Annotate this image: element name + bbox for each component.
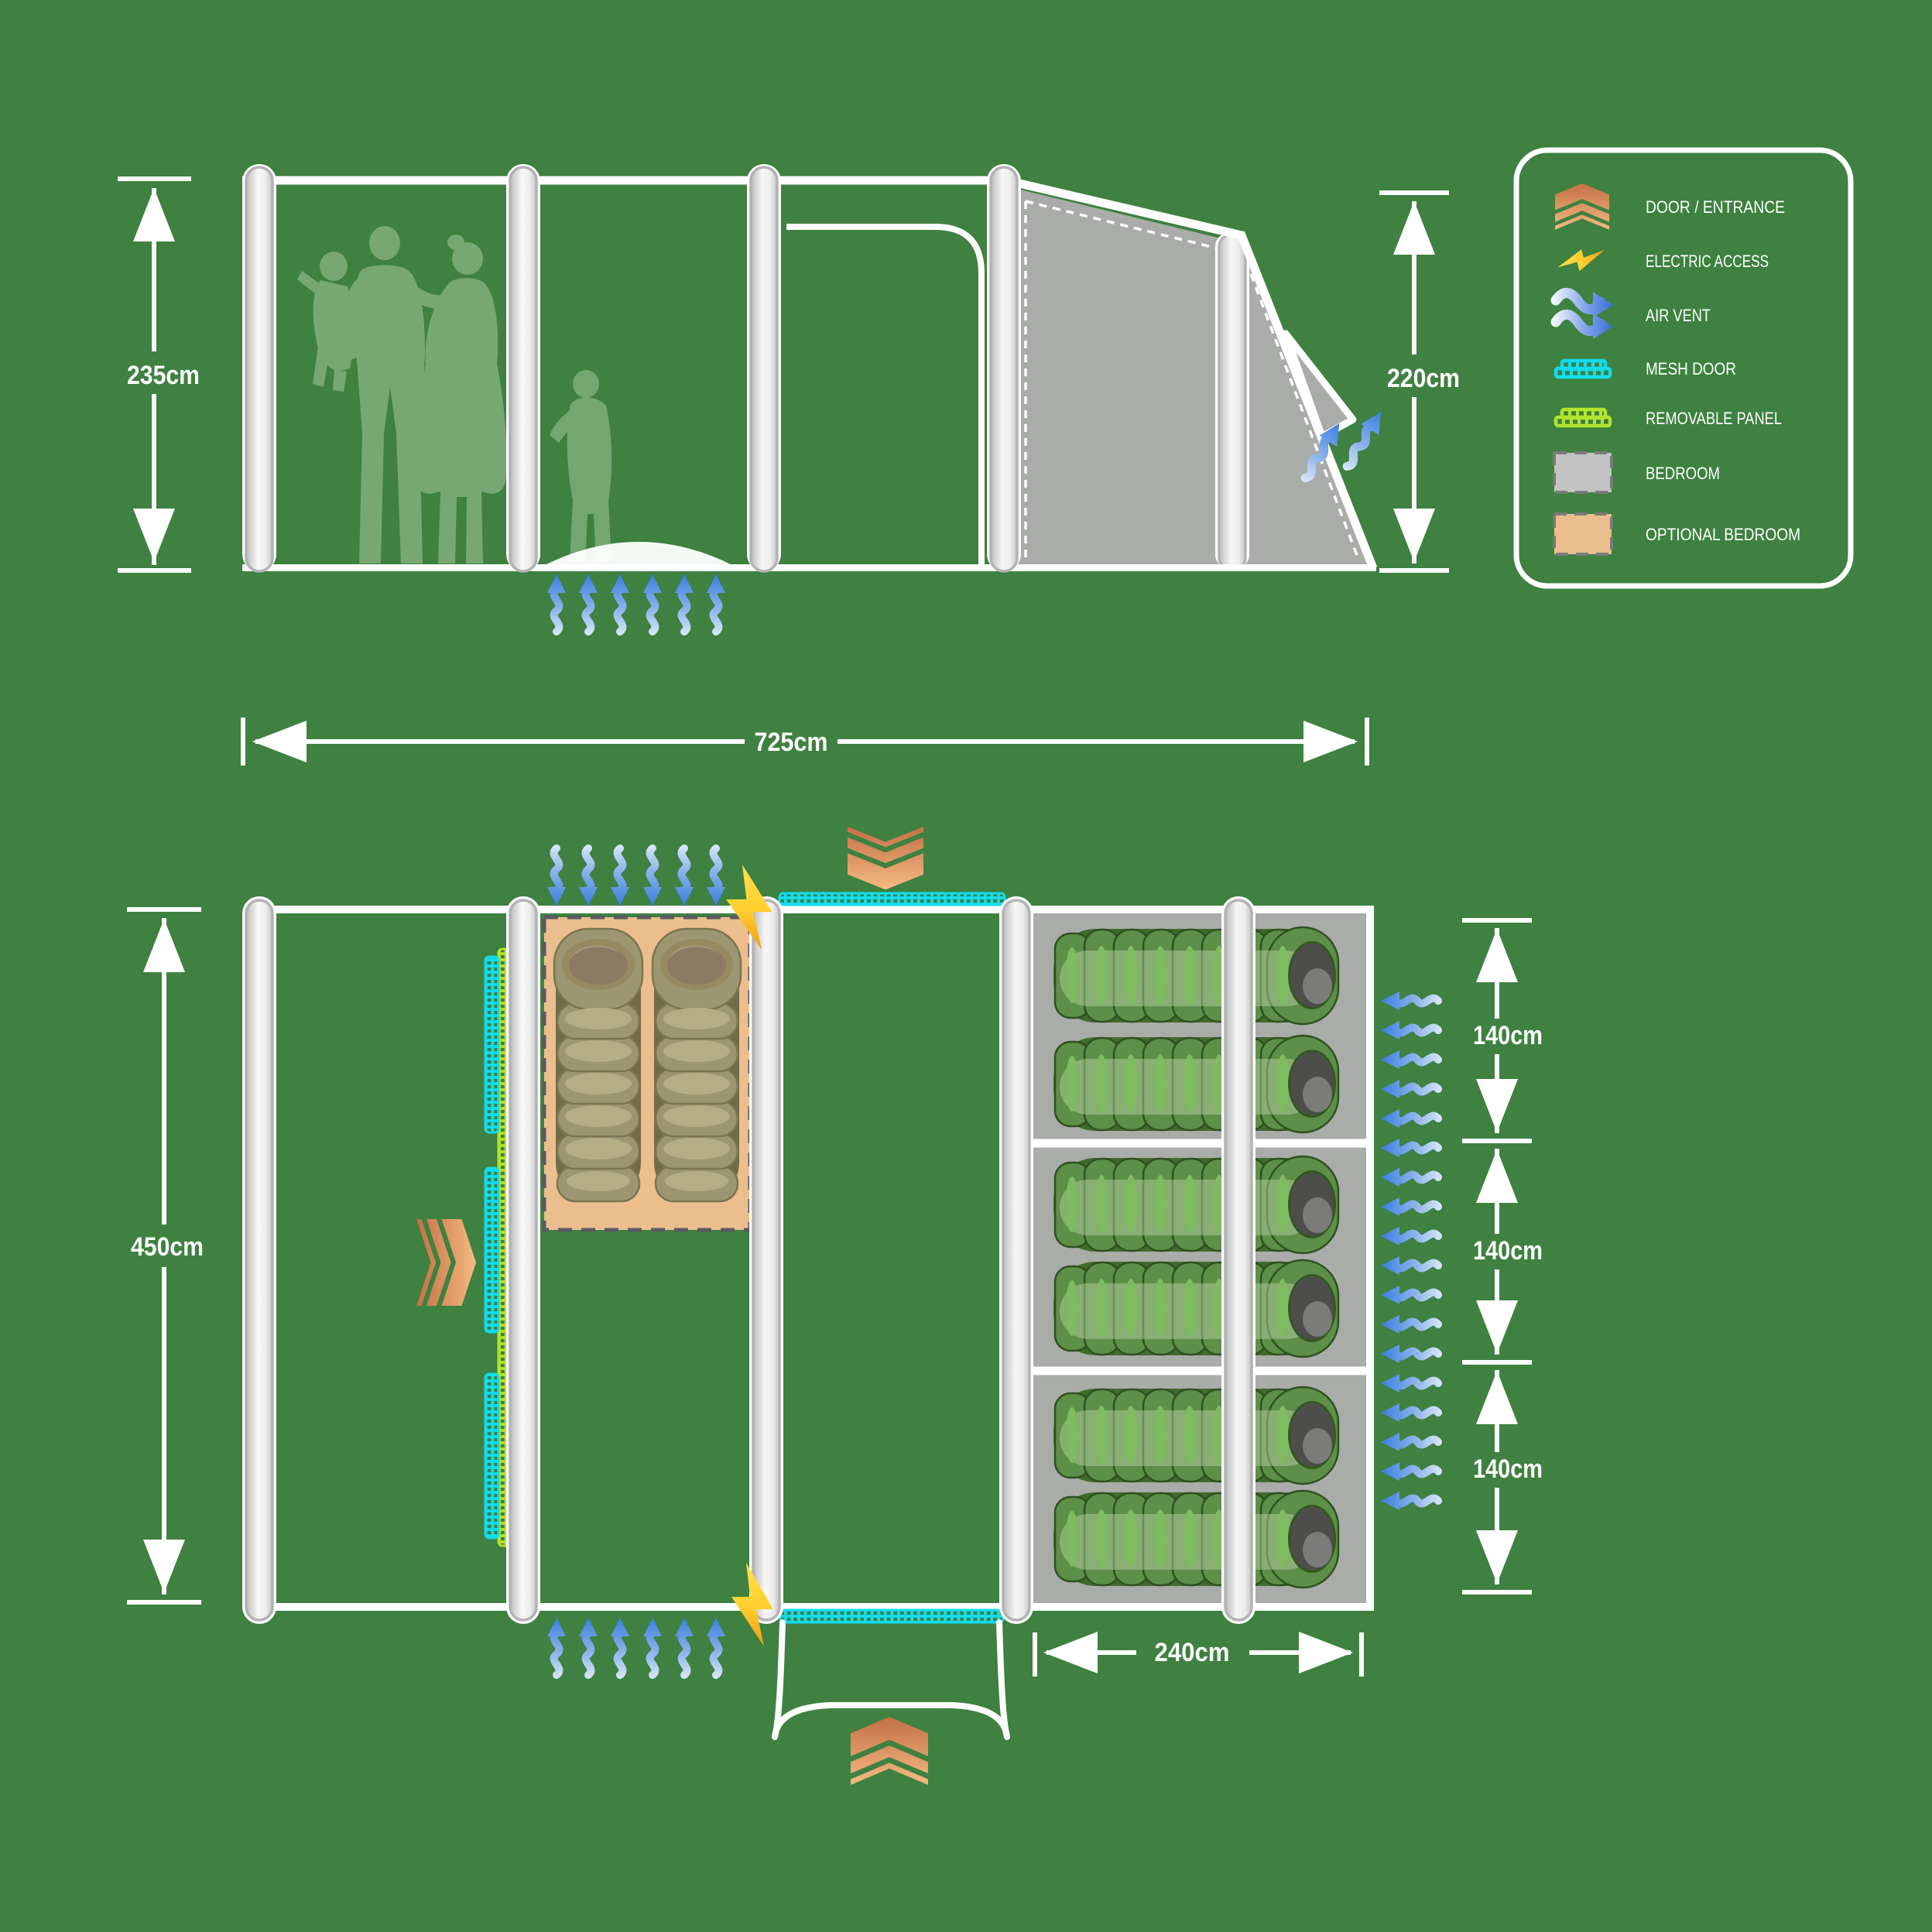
svg-text:BEDROOM: BEDROOM xyxy=(1646,464,1720,483)
svg-text:ELECTRIC ACCESS: ELECTRIC ACCESS xyxy=(1646,252,1769,271)
svg-text:MESH DOOR: MESH DOOR xyxy=(1646,359,1736,379)
svg-text:140cm: 140cm xyxy=(1473,1454,1543,1484)
svg-text:OPTIONAL BEDROOM: OPTIONAL BEDROOM xyxy=(1646,525,1800,544)
svg-text:DOOR / ENTRANCE: DOOR / ENTRANCE xyxy=(1646,197,1785,217)
svg-text:240cm: 240cm xyxy=(1155,1638,1230,1667)
svg-text:725cm: 725cm xyxy=(755,728,828,757)
svg-text:140cm: 140cm xyxy=(1473,1021,1543,1050)
svg-text:AIR VENT: AIR VENT xyxy=(1646,306,1711,325)
svg-text:140cm: 140cm xyxy=(1473,1236,1543,1266)
svg-text:REMOVABLE PANEL: REMOVABLE PANEL xyxy=(1646,409,1782,428)
svg-text:235cm: 235cm xyxy=(127,361,200,390)
svg-text:220cm: 220cm xyxy=(1387,364,1460,393)
svg-text:450cm: 450cm xyxy=(131,1232,204,1262)
